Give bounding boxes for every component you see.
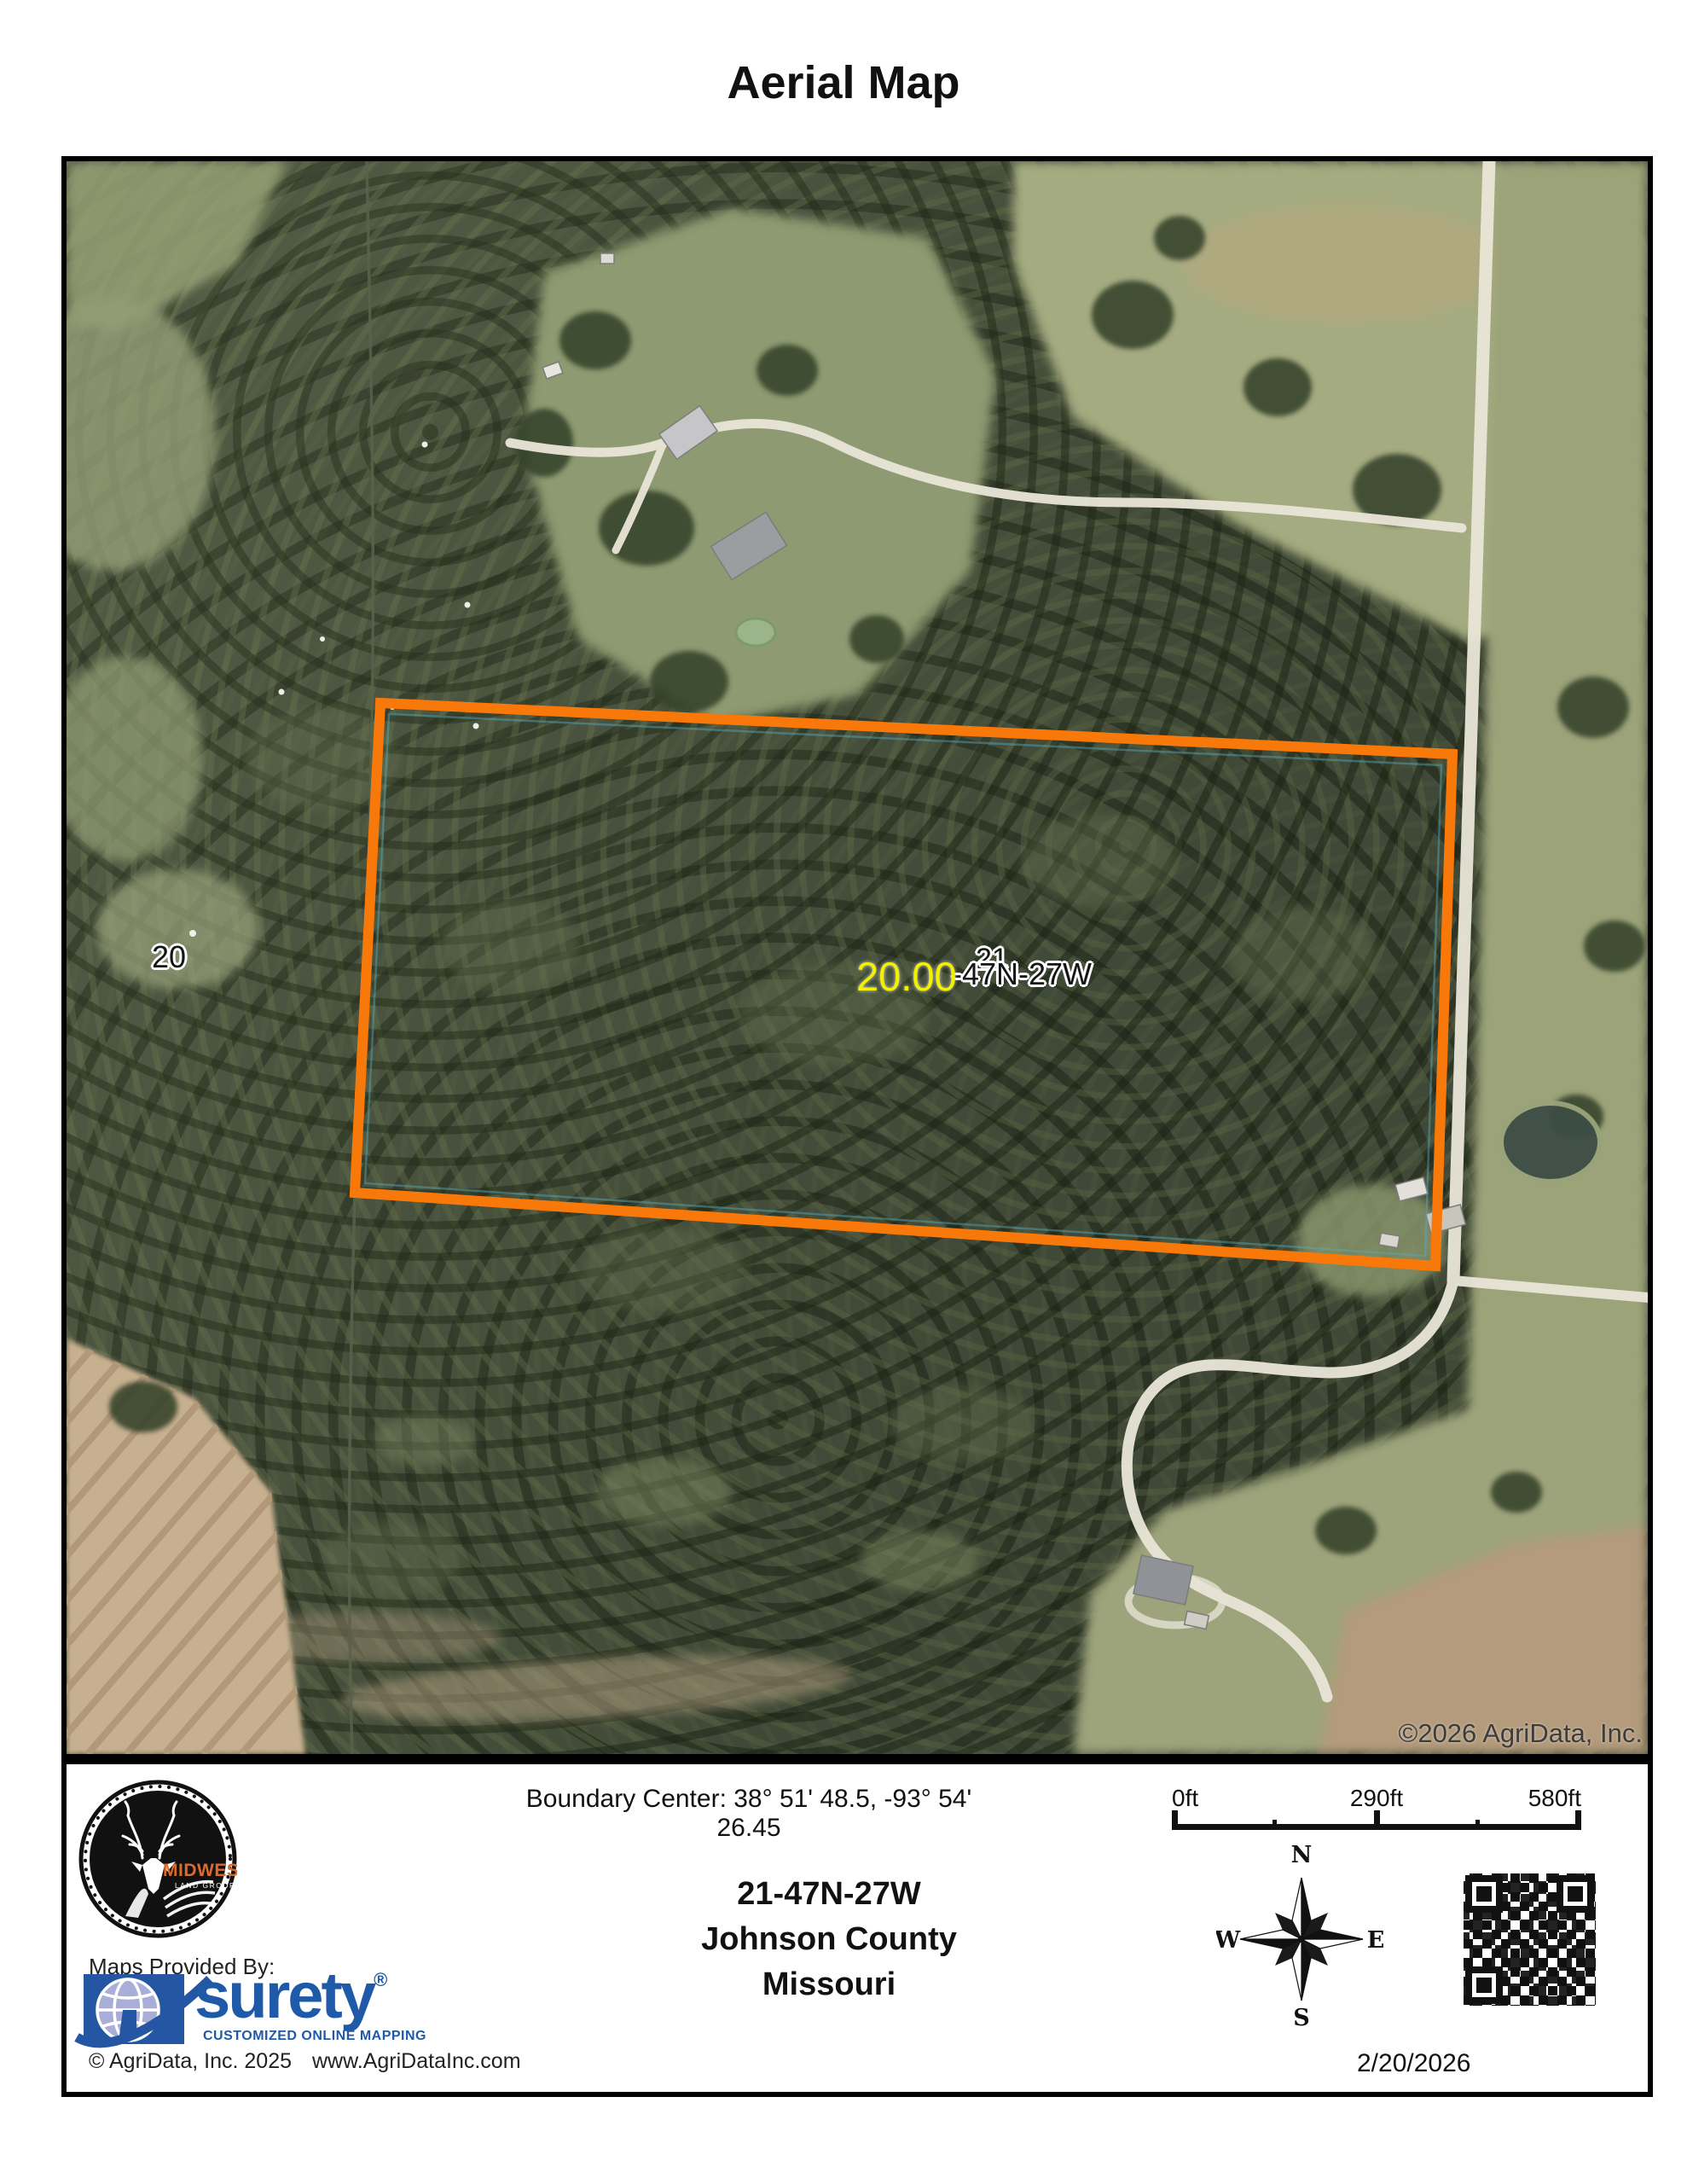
registered-mark: ® xyxy=(374,1971,387,1989)
scale-bar: 0ft 290ft 580ft xyxy=(1172,1785,1581,1844)
scale-tick xyxy=(1272,1820,1277,1830)
location-trs: 21-47N-27W xyxy=(658,1872,1000,1917)
acreage-label: 20.00 xyxy=(856,953,957,1000)
imagery-credit: ©2026 AgriData, Inc. xyxy=(1398,1718,1643,1749)
compass-rose: N S W E xyxy=(1216,1844,1387,2031)
map-date: 2/20/2026 xyxy=(1357,2049,1470,2078)
agridata-website: www.AgriDataInc.com xyxy=(312,2049,521,2074)
footer-panel: Midwest LAND GROUP Maps Provided By: sur… xyxy=(61,1759,1653,2097)
surety-wordmark: surety ® xyxy=(194,1971,387,2021)
qr-finder-pattern xyxy=(1465,1875,1503,1913)
cattle-specks xyxy=(189,442,479,938)
section-20-label: 20 xyxy=(152,939,186,975)
township-range-label: -47N-27W xyxy=(952,956,1092,992)
scale-tick xyxy=(1475,1820,1480,1830)
surety-brand-text: surety xyxy=(194,1971,374,2021)
qr-code xyxy=(1464,1873,1596,2006)
scale-label-max: 580ft xyxy=(1528,1785,1581,1812)
scale-tick xyxy=(1374,1810,1380,1830)
location-block: 21-47N-27W Johnson County Missouri xyxy=(658,1872,1000,2007)
compass-n: N xyxy=(1291,1844,1313,1868)
boundary-center-coordinates: Boundary Center: 38° 51' 48.5, -93° 54' … xyxy=(493,1785,1005,1843)
scale-tick xyxy=(1575,1810,1581,1830)
compass-s: S xyxy=(1293,2005,1310,2031)
qr-finder-pattern xyxy=(1557,1875,1594,1913)
agridata-copyright: © AgriData, Inc. 2025 xyxy=(89,2049,292,2074)
location-state: Missouri xyxy=(658,1962,1000,2007)
location-county: Johnson County xyxy=(658,1917,1000,1962)
surety-tagline: CUSTOMIZED ONLINE MAPPING xyxy=(203,2029,426,2044)
aerial-photo: 20 21 20.00 -47N-27W ©2026 AgriData, Inc… xyxy=(67,161,1648,1754)
midwest-land-group-logo: Midwest LAND GROUP xyxy=(78,1780,237,1938)
compass-w: W xyxy=(1216,1927,1241,1954)
compass-e: E xyxy=(1367,1927,1385,1954)
aerial-map-frame: 20 21 20.00 -47N-27W ©2026 AgriData, Inc… xyxy=(61,156,1653,1759)
land-group-wordmark: LAND GROUP xyxy=(175,1881,235,1890)
page-title: Aerial Map xyxy=(0,56,1687,109)
qr-finder-pattern xyxy=(1465,1966,1503,2004)
scale-label-mid: 290ft xyxy=(1350,1785,1403,1812)
scale-tick xyxy=(1172,1810,1178,1830)
midwest-wordmark: Midwest xyxy=(163,1861,237,1880)
surety-globe-logo xyxy=(84,1974,186,2047)
scale-label-0: 0ft xyxy=(1172,1785,1198,1812)
aerial-map-page: Aerial Map xyxy=(0,0,1687,2184)
